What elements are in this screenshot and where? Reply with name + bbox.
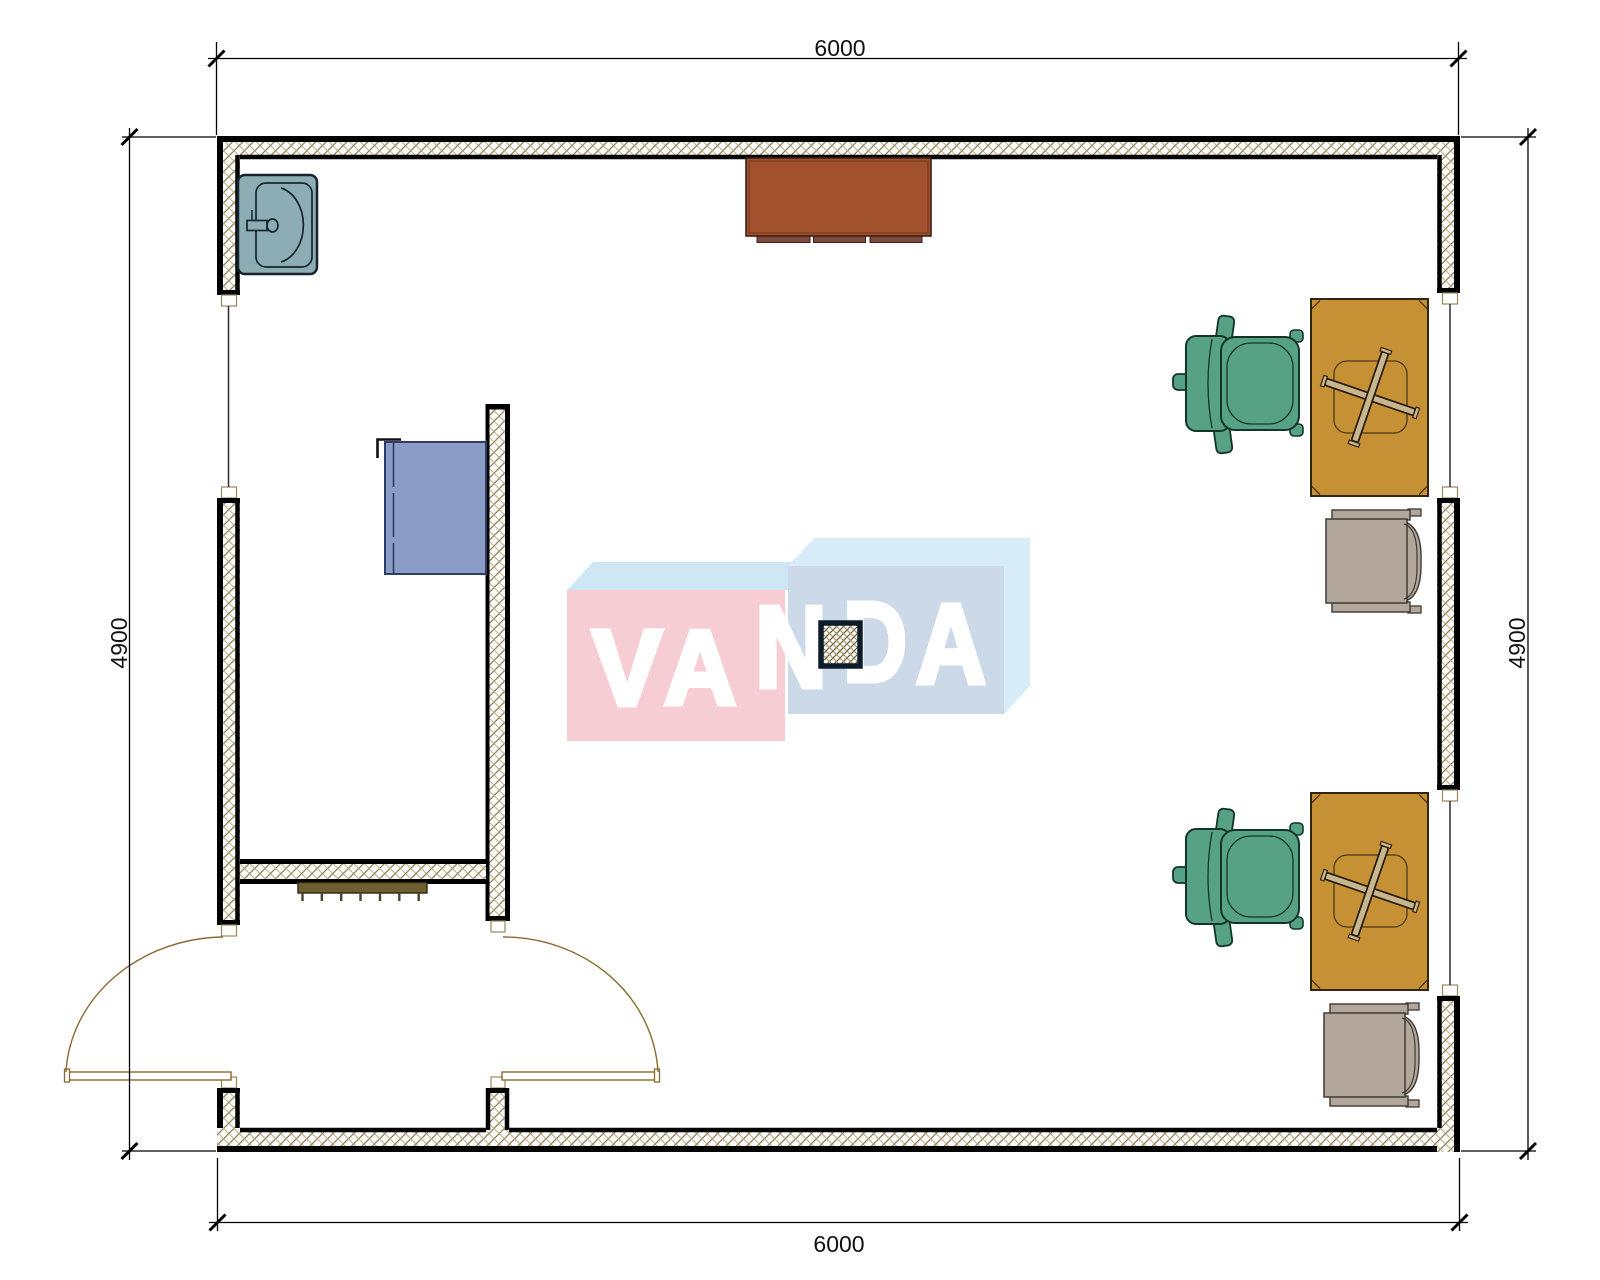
svg-text:6000: 6000 [813,1231,864,1257]
svg-text:4900: 4900 [106,617,132,668]
svg-text:6000: 6000 [814,35,865,61]
svg-text:V: V [592,607,662,728]
svg-text:N: N [755,582,827,712]
svg-text:A: A [664,609,736,727]
svg-text:4900: 4900 [1504,617,1530,668]
svg-text:A: A [916,581,986,707]
